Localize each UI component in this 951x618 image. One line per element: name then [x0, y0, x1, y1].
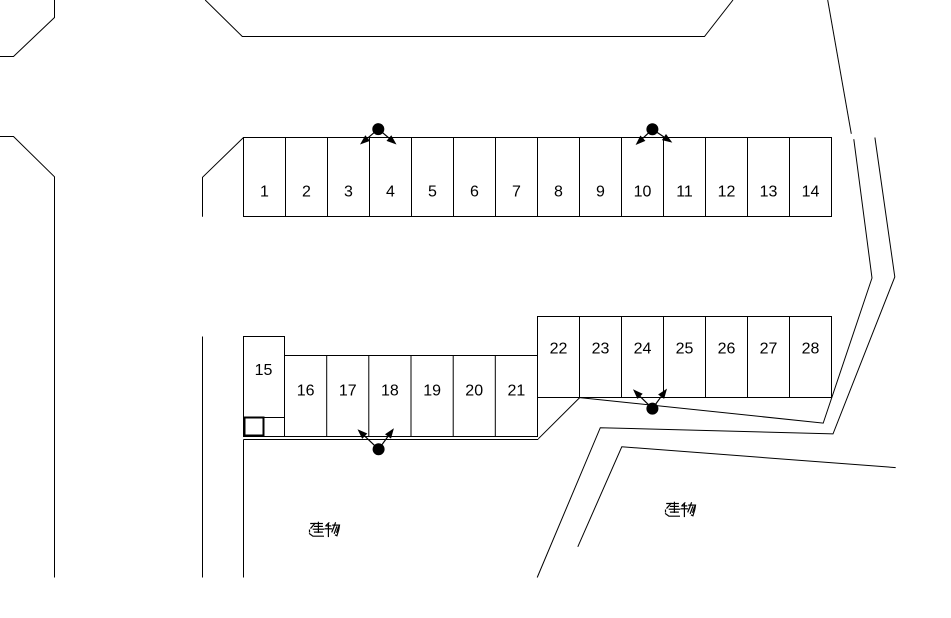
- svg-text:25: 25: [676, 341, 694, 358]
- svg-text:13: 13: [760, 184, 778, 201]
- svg-text:11: 11: [676, 184, 693, 201]
- svg-text:8: 8: [554, 184, 563, 201]
- svg-text:27: 27: [760, 341, 778, 358]
- svg-text:16: 16: [297, 383, 315, 400]
- svg-text:18: 18: [381, 383, 399, 400]
- svg-text:20: 20: [465, 383, 483, 400]
- svg-text:5: 5: [428, 184, 437, 201]
- svg-text:6: 6: [470, 184, 479, 201]
- svg-text:24: 24: [634, 341, 652, 358]
- svg-text:1: 1: [260, 184, 269, 201]
- svg-text:3: 3: [344, 184, 353, 201]
- svg-text:17: 17: [339, 383, 357, 400]
- svg-text:12: 12: [718, 184, 736, 201]
- svg-text:28: 28: [802, 341, 820, 358]
- svg-text:15: 15: [255, 362, 273, 379]
- svg-text:19: 19: [423, 383, 441, 400]
- svg-text:9: 9: [596, 184, 605, 201]
- svg-text:23: 23: [592, 341, 610, 358]
- svg-text:4: 4: [386, 184, 395, 201]
- svg-text:10: 10: [634, 184, 652, 201]
- svg-text:26: 26: [718, 341, 736, 358]
- svg-text:22: 22: [550, 341, 568, 358]
- svg-text:2: 2: [302, 184, 311, 201]
- svg-text:7: 7: [512, 184, 521, 201]
- svg-text:14: 14: [802, 184, 820, 201]
- svg-text:21: 21: [508, 383, 526, 400]
